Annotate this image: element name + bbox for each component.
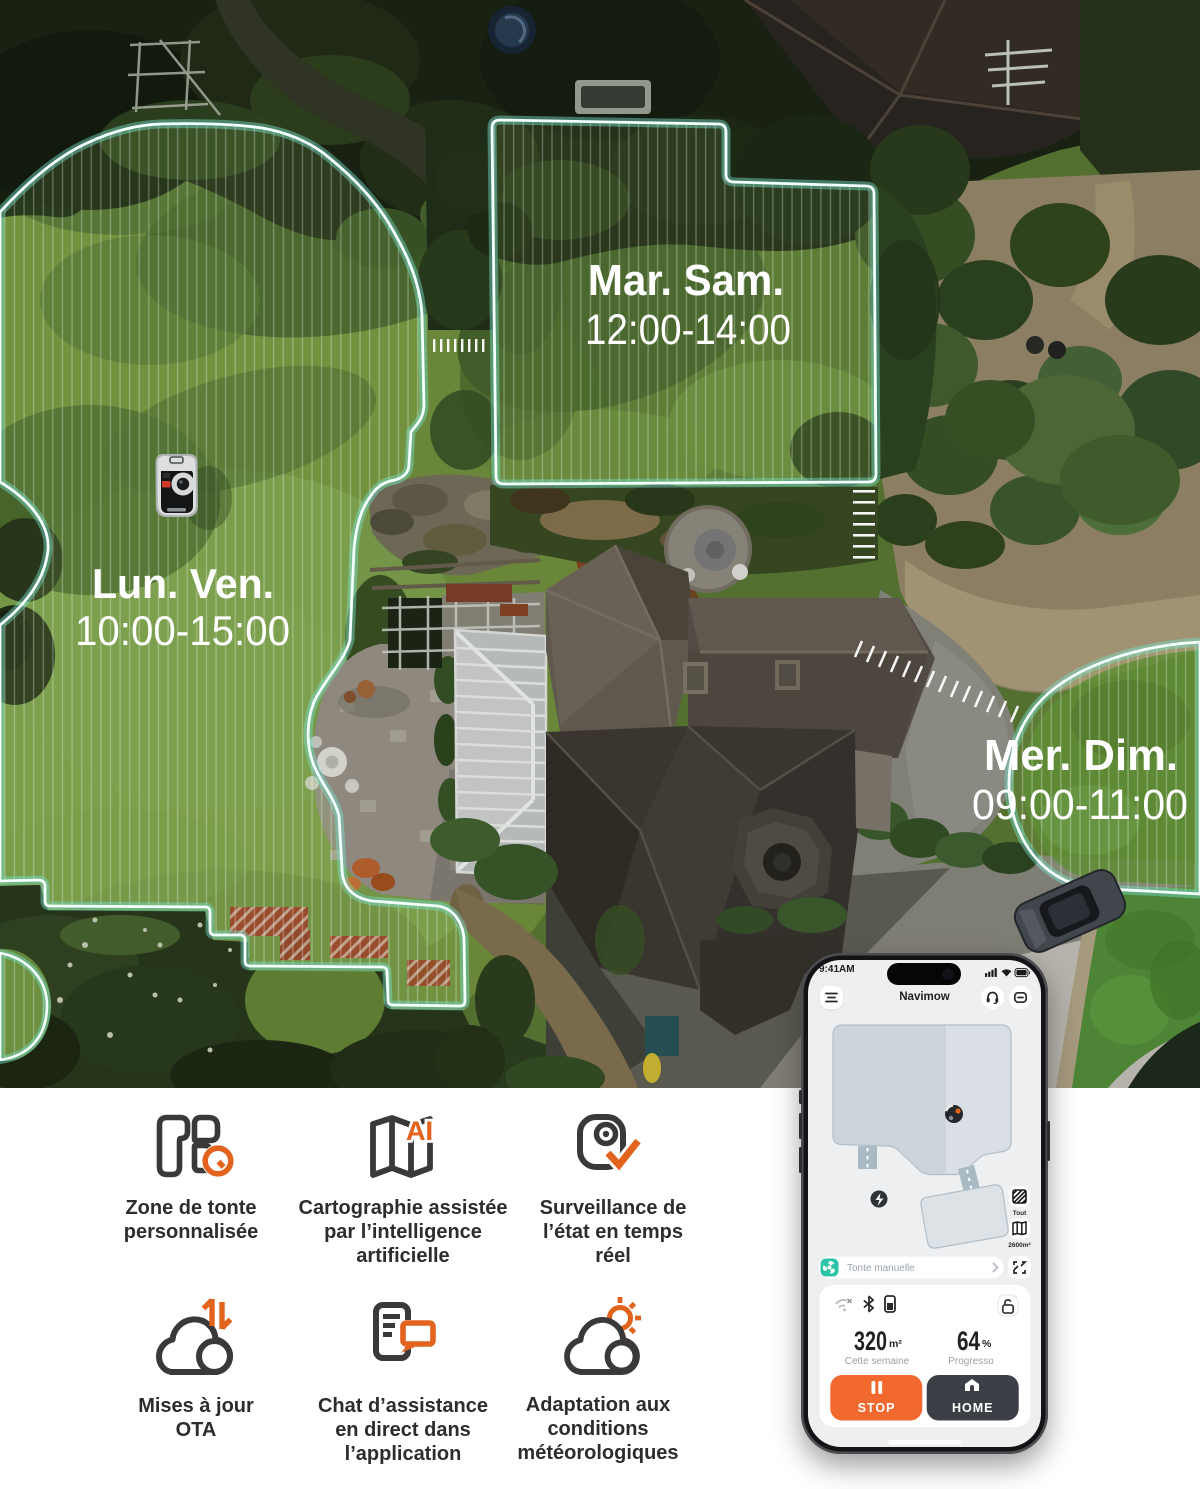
- svg-text:Mar. Sam.: Mar. Sam.: [588, 256, 784, 305]
- svg-text:%: %: [982, 1338, 992, 1350]
- svg-text:Progresso: Progresso: [948, 1356, 994, 1367]
- svg-text:STOP: STOP: [858, 1401, 896, 1415]
- svg-text:320: 320: [854, 1326, 887, 1356]
- svg-text:m²: m²: [889, 1338, 902, 1350]
- svg-text:HOME: HOME: [952, 1401, 994, 1415]
- svg-text:Mer. Dim.: Mer. Dim.: [984, 731, 1178, 780]
- svg-text:64: 64: [957, 1326, 980, 1356]
- svg-text:Lun. Ven.: Lun. Ven.: [92, 560, 274, 607]
- svg-text:Tout: Tout: [1013, 1210, 1027, 1217]
- svg-text:Cette semaine: Cette semaine: [845, 1356, 910, 1367]
- svg-text:2600m²: 2600m²: [1008, 1242, 1031, 1249]
- svg-text:AI: AI: [406, 1116, 433, 1146]
- svg-text:Tonte manuelle: Tonte manuelle: [847, 1263, 915, 1274]
- svg-text:10:00-15:00: 10:00-15:00: [75, 607, 290, 654]
- svg-text:09:00-11:00: 09:00-11:00: [972, 781, 1188, 829]
- svg-text:12:00-14:00: 12:00-14:00: [585, 306, 791, 354]
